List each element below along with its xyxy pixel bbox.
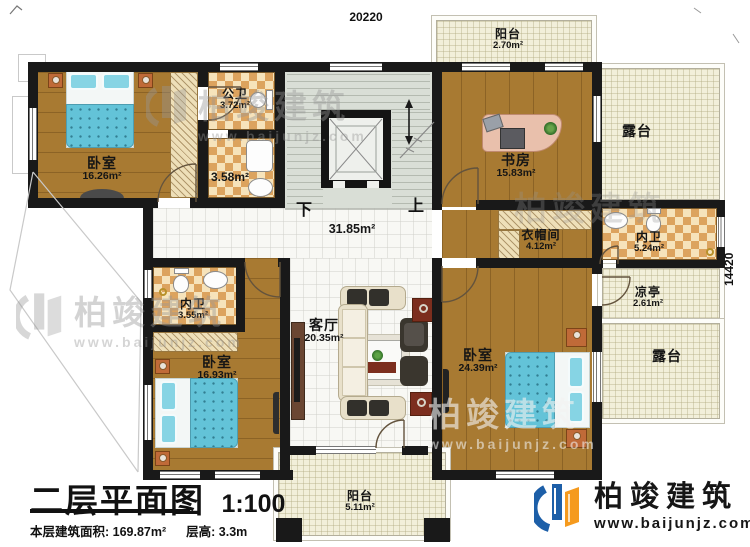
wall-segment xyxy=(288,446,316,455)
computer-monitor xyxy=(500,128,525,149)
toilet-icon xyxy=(173,275,189,293)
brand-url-text: www.baijunjz.com xyxy=(594,515,750,532)
bed-quilt xyxy=(66,104,134,148)
toilet-tank xyxy=(647,208,661,214)
plant-icon xyxy=(372,350,383,361)
plan-title: 二层平面图 xyxy=(30,474,205,522)
bed-quilt xyxy=(505,352,555,428)
watermark-logo-icon xyxy=(16,286,68,346)
side-table xyxy=(410,392,432,416)
wall-segment xyxy=(592,258,602,274)
window xyxy=(144,270,152,298)
room-label-bottom-balcony: 阳台 5.11m² xyxy=(328,490,392,513)
floor-height-text: 层高: 3.3m xyxy=(186,521,247,540)
wall-segment xyxy=(198,62,208,87)
title-block: 二层平面图 1:100 xyxy=(30,474,285,522)
nightstand xyxy=(48,73,63,88)
room-label-bedroom-bottom-right: 卧室 24.39m² xyxy=(446,348,510,374)
tv-icon xyxy=(294,338,300,402)
room-label-bedroom-top-left: 卧室 16.26m² xyxy=(70,156,134,182)
wall-segment xyxy=(198,120,208,208)
window xyxy=(220,63,258,71)
light-fixture-icon xyxy=(706,248,714,256)
toilet-tank xyxy=(266,90,273,110)
wall-segment xyxy=(432,62,442,210)
room-label-pavilion: 凉亭 2.61m² xyxy=(618,286,678,309)
room-label-study: 书房 15.83m² xyxy=(484,153,548,179)
floor-hall xyxy=(153,208,432,258)
elevator-cab xyxy=(329,118,383,180)
room-label-living-room: 客厅 20.35m² xyxy=(292,318,356,344)
stray-mark xyxy=(10,6,22,14)
toilet-tank xyxy=(174,268,189,274)
window xyxy=(29,108,37,160)
sofa-cushion xyxy=(369,289,389,306)
pillar xyxy=(424,518,450,542)
wardrobe-cloakroom xyxy=(498,210,592,230)
nightstand xyxy=(138,73,153,88)
stairs-down-label: 下 xyxy=(296,196,312,220)
wall-segment xyxy=(236,267,245,332)
wall-segment xyxy=(153,325,238,332)
brand-name-text: 柏竣建筑 xyxy=(594,483,750,512)
floor-plan: 20220 14420 下 上 卧室 16.26m² 公卫 3.72m² 3.5… xyxy=(0,0,750,547)
sofa-cushion xyxy=(369,400,389,416)
nightstand xyxy=(566,429,587,448)
side-table xyxy=(412,298,434,322)
room-label-left-inner-bath: 内卫 3.55m² xyxy=(164,298,222,321)
pillow xyxy=(160,381,177,411)
room-label-bedroom-bottom-left: 卧室 16.93m² xyxy=(185,355,249,381)
stray-mark xyxy=(694,8,739,43)
sofa-seat xyxy=(342,367,366,396)
plan-scale: 1:100 xyxy=(221,490,285,519)
wall-segment xyxy=(228,130,275,138)
pillow xyxy=(160,414,177,444)
wall-segment xyxy=(476,258,602,268)
armchair xyxy=(400,356,428,386)
sink-icon xyxy=(203,271,228,289)
room-label-public-bath: 公卫 3.72m² xyxy=(206,88,264,111)
nightstand xyxy=(155,359,170,374)
pillow xyxy=(102,73,131,90)
wall-segment xyxy=(275,62,285,208)
wall-segment xyxy=(402,446,428,455)
wall-segment xyxy=(616,260,725,268)
stair-treads xyxy=(287,74,430,112)
roof-outline-lines xyxy=(10,172,141,472)
nightstand xyxy=(566,328,587,347)
room-label-bottom-terrace: 露台 xyxy=(638,349,696,364)
tv-icon xyxy=(273,392,279,434)
window xyxy=(316,446,376,454)
wardrobe-bedroom-bottom-left xyxy=(153,332,238,352)
bed-quilt xyxy=(190,378,238,448)
room-label-top-terrace: 露台 xyxy=(608,124,666,139)
armchair-cushion xyxy=(404,323,424,346)
stair-treads xyxy=(287,112,323,208)
wall-segment xyxy=(198,198,285,208)
brand-logo-icon xyxy=(534,480,586,534)
wall-segment xyxy=(476,200,602,210)
title-underline xyxy=(30,509,190,513)
dimension-right: 14420 xyxy=(722,228,736,286)
window xyxy=(496,471,554,479)
wall-segment xyxy=(28,198,158,208)
elevator-door-gap xyxy=(333,181,345,188)
wall-segment xyxy=(717,200,725,217)
title-info-row: 本层建筑面积: 169.87m² 层高: 3.3m xyxy=(30,521,247,540)
window xyxy=(144,385,152,440)
room-label-right-inner-bath: 内卫 5.24m² xyxy=(620,231,678,254)
plant-icon xyxy=(544,122,557,135)
wall-segment xyxy=(592,306,602,352)
wall-segment xyxy=(280,258,290,480)
light-fixture-icon xyxy=(159,288,167,296)
window xyxy=(545,63,583,71)
pillow xyxy=(69,73,98,90)
nightstand xyxy=(155,451,170,466)
pillow xyxy=(568,391,584,423)
window xyxy=(593,352,601,402)
wardrobe-bedroom-top-left xyxy=(170,72,198,198)
sink-icon xyxy=(604,212,628,229)
window xyxy=(462,63,510,71)
room-label-top-balcony: 阳台 2.70m² xyxy=(478,28,538,51)
dimension-top: 20220 xyxy=(330,10,402,24)
pillow xyxy=(568,356,584,388)
room-label-cloakroom: 衣帽间 4.12m² xyxy=(508,229,574,252)
shower-icon xyxy=(246,140,273,172)
wall-segment xyxy=(143,258,245,267)
wall-segment xyxy=(592,62,602,267)
wall-segment xyxy=(595,200,725,208)
window xyxy=(330,63,382,71)
sofa-cushion xyxy=(347,400,367,416)
floor-area-text: 本层建筑面积: 169.87m² xyxy=(30,521,166,540)
window xyxy=(593,96,601,142)
brand-logo: 柏竣建筑 www.baijunjz.com xyxy=(534,480,750,534)
floor-bottom-terrace xyxy=(602,323,720,419)
stairs-up-label: 上 xyxy=(408,192,424,216)
room-label-middle-bath: 3.58m² xyxy=(200,171,260,184)
wall-segment xyxy=(28,62,602,72)
tv-icon xyxy=(443,369,449,413)
room-label-hall: 31.85m² xyxy=(316,223,388,236)
wall-segment xyxy=(432,258,442,480)
elevator-door-gap xyxy=(367,181,379,188)
wall-segment xyxy=(592,402,602,470)
